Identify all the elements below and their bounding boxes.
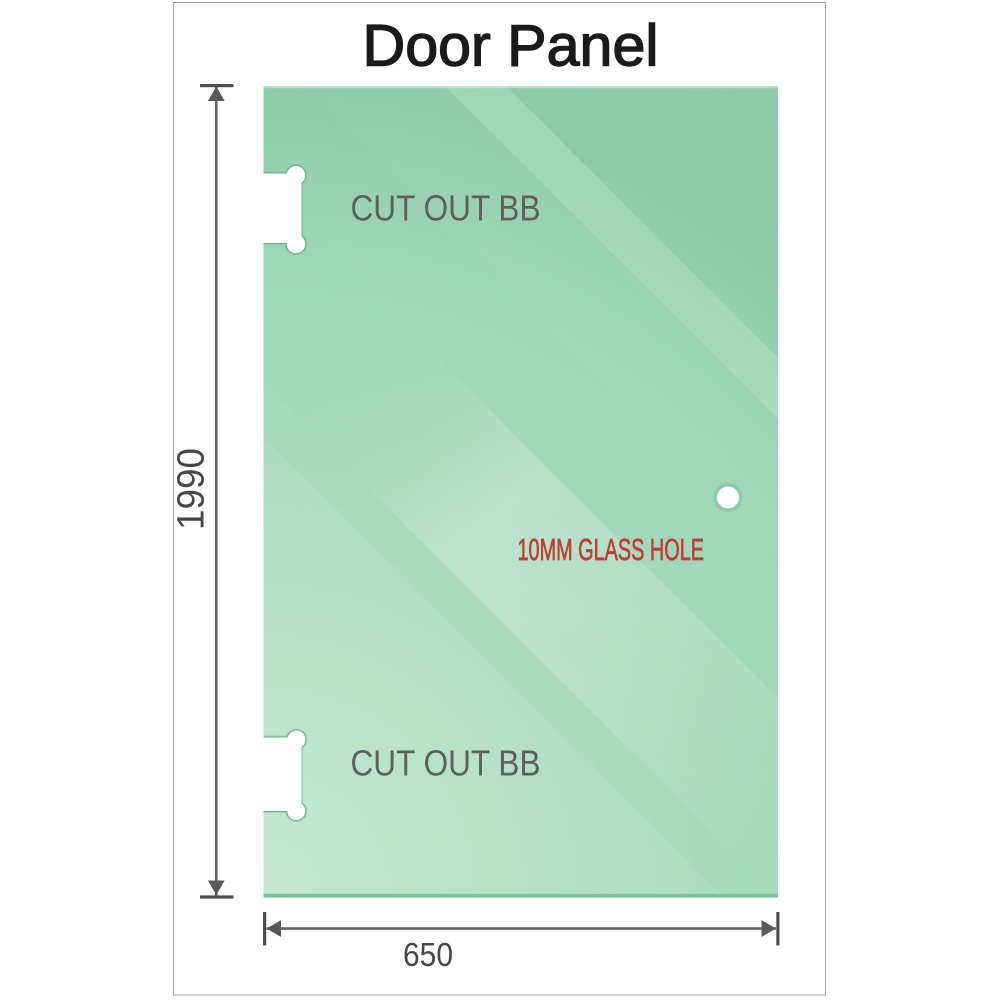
svg-text:CUT OUT BB: CUT OUT BB (351, 743, 541, 784)
svg-text:CUT OUT BB: CUT OUT BB (351, 188, 541, 229)
svg-text:Door Panel: Door Panel (363, 14, 659, 79)
svg-text:650: 650 (403, 937, 453, 974)
svg-text:1990: 1990 (171, 448, 213, 530)
svg-text:10MM GLASS HOLE: 10MM GLASS HOLE (518, 533, 705, 567)
